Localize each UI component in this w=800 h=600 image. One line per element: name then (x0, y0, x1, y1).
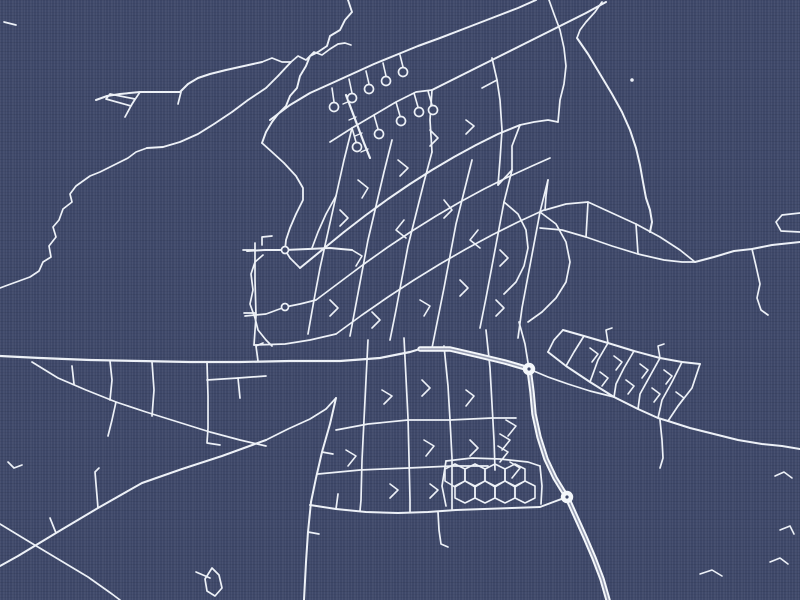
culdesac-circle (429, 106, 438, 115)
culdesac-circle (415, 108, 424, 117)
linen-texture-weave (0, 0, 800, 600)
roundabout-center-dot (565, 495, 568, 498)
culdesac-circle (397, 117, 406, 126)
junction-node-circle (282, 247, 289, 254)
roundabout-center-dot (527, 367, 530, 370)
culdesac-circle (365, 85, 374, 94)
map-dot (630, 78, 634, 82)
culdesac-circle (330, 103, 339, 112)
culdesac-circle (348, 94, 357, 103)
culdesac-circle (375, 130, 384, 139)
junction-node-circle (282, 304, 289, 311)
culdesac-circle (353, 143, 362, 152)
city-map-svg (0, 0, 800, 600)
city-blueprint-map-poster (0, 0, 800, 600)
culdesac-circle (382, 77, 391, 86)
culdesac-circle (399, 68, 408, 77)
